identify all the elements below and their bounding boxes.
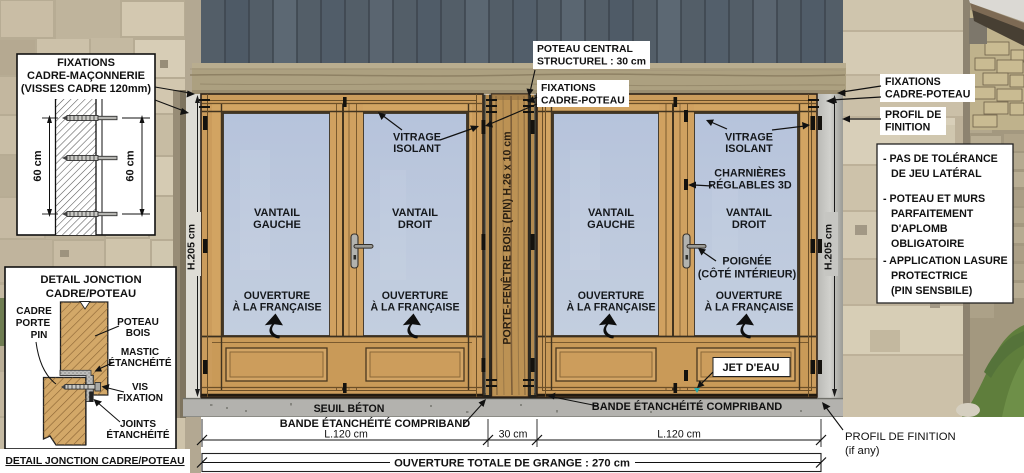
svg-text:DROIT: DROIT	[398, 219, 433, 231]
svg-text:OUVERTURE: OUVERTURE	[382, 290, 449, 302]
svg-text:H.205 cm: H.205 cm	[186, 224, 198, 270]
svg-text:- APPLICATION LASURE: - APPLICATION LASURE	[883, 255, 1008, 267]
svg-text:60 cm: 60 cm	[125, 150, 137, 181]
svg-text:PORTE: PORTE	[16, 318, 51, 329]
svg-text:BANDE ÉTANCHÉITÉ COMPRIBAND: BANDE ÉTANCHÉITÉ COMPRIBAND	[592, 400, 783, 413]
svg-text:OUVERTURE: OUVERTURE	[244, 290, 311, 302]
svg-text:- PAS DE TOLÉRANCE: - PAS DE TOLÉRANCE	[883, 152, 998, 165]
svg-text:ÉTANCHÉITÉ: ÉTANCHÉITÉ	[108, 356, 171, 369]
svg-text:D'APLOMB: D'APLOMB	[891, 223, 948, 235]
svg-text:(CÔTÉ INTÉRIEUR): (CÔTÉ INTÉRIEUR)	[698, 268, 797, 281]
svg-text:FIXATIONS: FIXATIONS	[541, 83, 596, 94]
svg-text:VANTAIL: VANTAIL	[726, 207, 772, 219]
svg-text:VITRAGE: VITRAGE	[393, 132, 441, 144]
svg-text:(VISSES CADRE 120mm): (VISSES CADRE 120mm)	[21, 83, 152, 95]
svg-text:FIXATION: FIXATION	[117, 393, 163, 404]
svg-text:PARFAITEMENT: PARFAITEMENT	[891, 208, 974, 220]
svg-text:30 cm: 30 cm	[499, 429, 528, 441]
svg-text:60 cm: 60 cm	[32, 150, 44, 181]
svg-text:VITRAGE: VITRAGE	[725, 132, 773, 144]
svg-text:À LA FRANÇAISE: À LA FRANÇAISE	[370, 301, 459, 314]
svg-text:L.120 cm: L.120 cm	[657, 429, 701, 441]
svg-text:SEUIL BÉTON: SEUIL BÉTON	[314, 402, 385, 415]
svg-text:BANDE ÉTANCHÉITÉ COMPRIBAND: BANDE ÉTANCHÉITÉ COMPRIBAND	[280, 417, 471, 430]
svg-text:À LA FRANÇAISE: À LA FRANÇAISE	[232, 301, 321, 314]
svg-text:JET D'EAU: JET D'EAU	[722, 362, 779, 374]
svg-text:ÉTANCHÉITÉ: ÉTANCHÉITÉ	[106, 428, 169, 441]
svg-text:CADRE/POTEAU: CADRE/POTEAU	[46, 288, 136, 300]
svg-text:MASTIC: MASTIC	[121, 347, 159, 358]
svg-text:VANTAIL: VANTAIL	[254, 207, 300, 219]
svg-text:JOINTS: JOINTS	[120, 419, 156, 430]
svg-text:OUVERTURE TOTALE DE GRANGE : 2: OUVERTURE TOTALE DE GRANGE : 270 cm	[394, 458, 630, 470]
svg-text:OUVERTURE: OUVERTURE	[716, 290, 783, 302]
svg-text:FIXATIONS: FIXATIONS	[57, 57, 115, 69]
svg-text:(if any): (if any)	[845, 445, 880, 457]
svg-text:H.205 cm: H.205 cm	[823, 224, 835, 270]
svg-text:FINITION: FINITION	[885, 122, 930, 134]
svg-text:PROFIL DE: PROFIL DE	[885, 109, 941, 121]
svg-text:DROIT: DROIT	[732, 219, 767, 231]
svg-text:STRUCTUREL : 30 cm: STRUCTUREL : 30 cm	[537, 57, 646, 68]
svg-text:OBLIGATOIRE: OBLIGATOIRE	[891, 238, 964, 250]
svg-text:BOIS: BOIS	[126, 328, 151, 339]
svg-text:PIN: PIN	[31, 330, 48, 341]
svg-text:À LA FRANÇAISE: À LA FRANÇAISE	[704, 301, 793, 314]
svg-text:VANTAIL: VANTAIL	[392, 207, 438, 219]
svg-text:GAUCHE: GAUCHE	[253, 219, 301, 231]
svg-text:DE JEU LATÉRAL: DE JEU LATÉRAL	[891, 167, 982, 180]
svg-text:CADRE-POTEAU: CADRE-POTEAU	[885, 89, 970, 101]
svg-text:(PIN SENSBILE): (PIN SENSBILE)	[891, 285, 973, 297]
svg-text:- POTEAU ET MURS: - POTEAU ET MURS	[883, 193, 985, 205]
svg-text:FIXATIONS: FIXATIONS	[885, 76, 941, 88]
svg-text:OUVERTURE: OUVERTURE	[578, 290, 645, 302]
svg-text:PROTECTRICE: PROTECTRICE	[891, 270, 968, 282]
svg-text:DETAIL JONCTION CADRE/POTEAU: DETAIL JONCTION CADRE/POTEAU	[5, 456, 184, 467]
svg-text:PORTE-FENÊTRE BOIS (PIN) H.26: PORTE-FENÊTRE BOIS (PIN) H.26 x 10 cm	[501, 131, 514, 344]
svg-text:L.120 cm: L.120 cm	[324, 429, 368, 441]
svg-text:VIS: VIS	[132, 382, 148, 393]
svg-text:CADRE: CADRE	[16, 306, 52, 317]
svg-text:GAUCHE: GAUCHE	[587, 219, 635, 231]
svg-text:ISOLANT: ISOLANT	[393, 143, 441, 155]
svg-text:À LA FRANÇAISE: À LA FRANÇAISE	[566, 301, 655, 314]
svg-text:POIGNÉE: POIGNÉE	[722, 255, 771, 268]
svg-text:CHARNIÈRES: CHARNIÈRES	[714, 167, 785, 180]
svg-text:POTEAU CENTRAL: POTEAU CENTRAL	[537, 44, 633, 55]
svg-text:RÉGLABLES 3D: RÉGLABLES 3D	[708, 179, 792, 192]
svg-text:DETAIL JONCTION: DETAIL JONCTION	[40, 274, 141, 286]
svg-text:CADRE-MAÇONNERIE: CADRE-MAÇONNERIE	[27, 70, 145, 82]
svg-text:ISOLANT: ISOLANT	[725, 143, 773, 155]
svg-text:VANTAIL: VANTAIL	[588, 207, 634, 219]
svg-text:CADRE-POTEAU: CADRE-POTEAU	[541, 96, 625, 107]
svg-text:POTEAU: POTEAU	[117, 317, 159, 328]
svg-text:PROFIL DE FINITION: PROFIL DE FINITION	[845, 431, 956, 443]
